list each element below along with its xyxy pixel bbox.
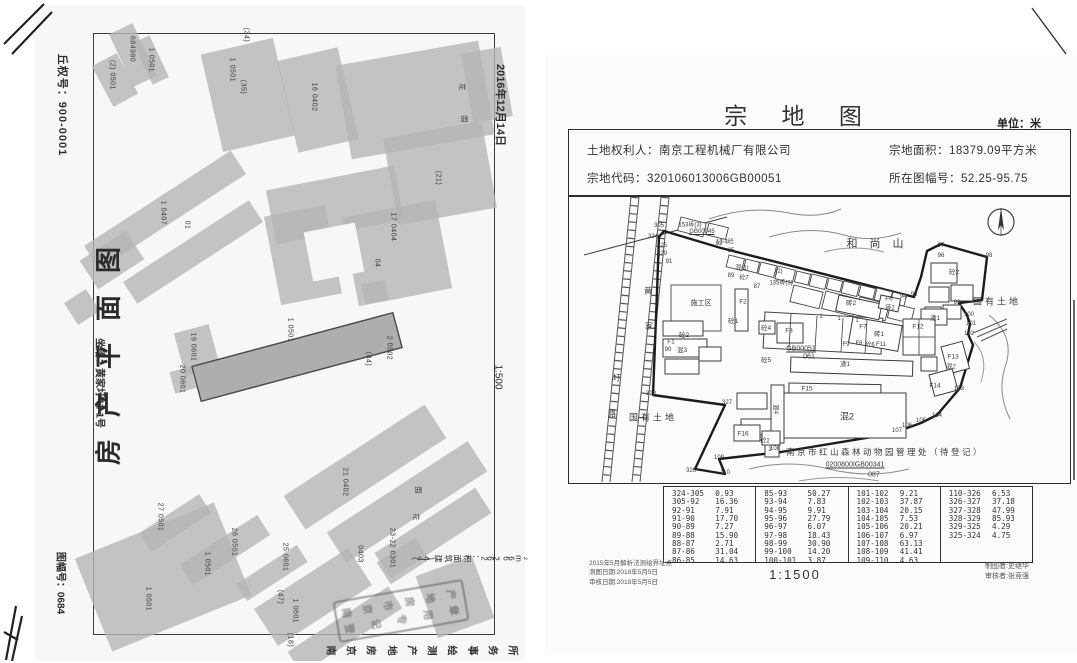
map-label: 104	[932, 413, 942, 419]
map-label: 渣1	[930, 312, 940, 322]
rotated-char: 产	[405, 646, 420, 656]
note-line: 2015年5月解析法测绘界址点	[589, 559, 672, 568]
map-label: F2	[739, 299, 747, 306]
map-label: 混2	[840, 410, 854, 423]
segment-row: 109-1104.63	[857, 557, 934, 565]
building-label: 0403	[357, 545, 364, 563]
building-label: 25 0601	[282, 543, 289, 572]
segment-length: 4.63	[900, 557, 934, 565]
building-label: (44)	[365, 352, 372, 366]
map-label: 107	[892, 428, 902, 434]
rotated-char: 房	[402, 595, 419, 607]
building-label: 花	[457, 83, 467, 91]
plan-scale: 1:500	[493, 364, 504, 389]
map-label: 102	[964, 331, 974, 337]
plan-sheet-number: 图幅号：0684	[55, 552, 70, 614]
note-line: 审核日期:2018年5月5日	[589, 578, 672, 587]
segment-id: 325-324	[949, 532, 981, 540]
map-label: 87	[754, 284, 761, 290]
map-label: 砼5	[761, 354, 771, 364]
map-label: 砼6	[865, 340, 874, 349]
map-label: 324	[648, 234, 658, 240]
segment-row: 325-3244.75	[949, 532, 1026, 540]
rotated-char: 房	[365, 646, 380, 656]
segment-id: 109-110	[857, 557, 889, 565]
rotated-char: 京	[345, 646, 360, 656]
map-label: 砼2	[760, 436, 769, 445]
building-label: 1 0501	[287, 318, 294, 342]
map-label: 砖1	[874, 328, 884, 338]
map-label: 135砖(3)	[769, 278, 792, 287]
map-label: 圩	[613, 373, 621, 384]
building-label: 684980	[129, 36, 136, 62]
map-sheet-number: 所在图幅号：52.25-95.75	[889, 170, 1028, 186]
rotated-char: 产	[443, 588, 460, 600]
survey-notes: 2015年5月解析法测绘界址点测图日期:2018年5月5日审核日期:2018年5…	[589, 559, 672, 587]
parcel-map-page: 宗 地 图 单位：米 土地权利人：南京工程机械厂有限公司 宗地代码：320106…	[545, 55, 1077, 655]
building-label: (34)	[243, 28, 250, 42]
map-label: F7	[859, 324, 867, 331]
map-label: 98	[986, 253, 993, 259]
building-label: 围	[459, 115, 469, 123]
rotated-char: 务	[486, 646, 501, 656]
building-label: 2 0502	[386, 336, 393, 360]
map-label: F16	[737, 431, 748, 438]
building-label: 23-22 0301	[389, 528, 396, 568]
parcel-map-title: 宗 地 图	[665, 97, 935, 131]
rotated-char: 南	[325, 646, 340, 656]
plot-number: 丘权号：900-0001	[55, 54, 71, 157]
rotated-char: 用	[420, 608, 437, 620]
map-label: 327	[722, 400, 732, 406]
map-label: 91	[666, 259, 673, 265]
note-line: 审核者:张竞强	[985, 572, 1029, 582]
rotated-char: ²	[518, 557, 529, 560]
rotated-char: 专	[394, 613, 411, 625]
rotated-char: 登	[342, 622, 359, 634]
map-label: 110	[720, 470, 730, 476]
map-label: 087	[868, 472, 880, 479]
map-label: F15	[801, 386, 812, 393]
map-label: 砼4	[761, 322, 771, 332]
building-label: 20 0601	[179, 365, 186, 394]
building-label: 1 0501	[229, 58, 236, 82]
parcel-map-box: 和尚山国有土地国有土地施工区黄家圩路305324325329919285153砖…	[568, 196, 1071, 484]
rotated-char: 所	[506, 646, 521, 656]
map-label: 85	[728, 248, 735, 254]
segment-row: 86-8514.63	[672, 557, 749, 565]
note-line: 制图者:史继华	[985, 562, 1029, 572]
parcel-area: 宗地面积：18379.09平方米	[889, 142, 1037, 158]
segment-table: 324-3050.93305-9216.3692-917.9191-9017.7…	[663, 486, 1033, 563]
map-label: 97	[938, 243, 945, 249]
map-label: 99	[954, 300, 961, 306]
map-label: 路	[608, 409, 616, 420]
map-label: 105	[916, 418, 926, 424]
segment-table-column: 110-3266.53326-32737.18327-32847.99328-3…	[940, 487, 1032, 562]
building-label: 04	[374, 259, 381, 268]
building-area-note: (44) 建筑面积：262.66m²	[413, 553, 525, 564]
map-label: F3	[785, 328, 793, 335]
map-label: 93	[911, 292, 918, 298]
building-label: 1 0501	[148, 48, 155, 72]
building-label: 1 0407	[160, 201, 167, 225]
segment-table-column: 324-3050.93305-9216.3692-917.9191-9017.7…	[664, 487, 755, 562]
map-label: 砼1	[728, 315, 738, 325]
map-label: GB00045	[689, 229, 714, 235]
segment-table-column: 101-1029.21102-10337.87103-10420.15104-1…	[848, 487, 940, 562]
map-label: 2	[768, 447, 771, 453]
map-label: 渣1	[840, 358, 850, 368]
map-label: 砖2	[846, 297, 856, 307]
map-label: 混3	[677, 344, 687, 354]
building-label: 01	[184, 221, 191, 230]
map-label: F11	[876, 342, 886, 348]
map-label: 153砖(3)	[678, 220, 701, 229]
building-label: (18)	[287, 633, 294, 647]
rotated-char: 记	[368, 617, 385, 629]
map-label: 砼7	[739, 273, 748, 282]
rotated-char: 绘	[446, 646, 461, 656]
parcel-code: 宗地代码：320106013006GB00051	[587, 170, 782, 186]
segment-length: 14.63	[715, 557, 749, 565]
map-label: 325	[657, 243, 667, 249]
rotated-char: 市	[381, 599, 398, 611]
map-label: 1	[855, 318, 858, 324]
rotated-char: 测	[426, 646, 441, 656]
map-label: 家	[645, 321, 653, 332]
map-label: 90	[665, 347, 672, 353]
map-label: 混2	[946, 362, 955, 371]
plan-location: 坐落：黄家圩41-1号	[94, 338, 109, 428]
map-label: 0200800IGB00341	[826, 462, 885, 469]
map-label: 砖2	[885, 303, 894, 312]
map-label: 89	[728, 273, 735, 279]
map-label: F6	[885, 296, 893, 303]
segment-length: 3.87	[808, 557, 842, 565]
map-label: 103	[954, 386, 964, 392]
map-label: 施工区	[691, 298, 712, 308]
segment-id: 86-85	[672, 557, 695, 565]
map-label: F13	[947, 354, 958, 361]
segment-length: 4.75	[992, 532, 1026, 540]
map-label: 106	[902, 423, 912, 429]
map-label: 砼2	[679, 329, 689, 339]
land-owner: 土地权利人：南京工程机械厂有限公司	[587, 142, 791, 158]
map-label: 13-4砼	[716, 237, 734, 246]
map-label: 305	[654, 223, 664, 229]
plan-date: 2016年12月14日	[493, 64, 509, 146]
rotated-char: 京	[360, 602, 377, 614]
map-label: F14	[929, 383, 940, 390]
map-label: 101	[966, 321, 976, 327]
map-label: 混(1)	[735, 263, 748, 272]
map-label: F8	[855, 341, 862, 347]
map-label: 100	[964, 312, 974, 318]
surveying-agency: 南京房地产测绘事务所	[327, 643, 519, 658]
map-label: F9	[842, 342, 849, 348]
property-plan-page: 丘权号：900-0001 房产平面图 坐落：黄家圩41-1号 图幅号：0684 …	[35, 5, 525, 661]
map-label: 国有土地	[629, 411, 677, 424]
building-label: (47)	[277, 590, 284, 604]
map-label: 黄	[644, 286, 652, 297]
segment-table-column: 85-9350.2793-947.8394-959.9195-9627.7996…	[755, 487, 847, 562]
building-label: 1 0601	[292, 599, 299, 623]
building-label: (35)	[240, 80, 247, 94]
rotated-char: 地	[423, 591, 440, 603]
map-label: 砼2	[949, 266, 959, 276]
map-label: (2)	[775, 269, 782, 275]
building-label: 1 0501	[204, 552, 211, 576]
map-label: 061	[803, 354, 815, 361]
parcel-header-box: 土地权利人：南京工程机械厂有限公司 宗地代码：320106013006GB000…	[568, 129, 1071, 196]
map-label: 混4	[772, 404, 782, 414]
building-label: (2) 0501	[109, 60, 116, 90]
map-label: F12	[912, 324, 923, 331]
building-label: 19 0601	[190, 333, 197, 362]
map-label: 328	[646, 391, 656, 397]
building-label: 花	[411, 513, 421, 521]
building-label: 围	[413, 486, 423, 494]
segment-id: 100-101	[764, 557, 796, 565]
map-label: 329	[657, 251, 667, 257]
rotated-char: 地	[385, 646, 400, 656]
building-label: 26 0501	[231, 528, 238, 557]
rotated-char: 南	[339, 606, 356, 618]
map-label: 96	[938, 253, 945, 259]
drafter-notes: 制图者:史继华审核者:张竞强	[985, 562, 1029, 582]
rotated-char: 章	[446, 603, 463, 615]
map-label: 1	[819, 314, 822, 320]
note-line: 测图日期:2018年5月5日	[589, 568, 672, 577]
building-label: 17 0404	[390, 213, 397, 242]
map-label: 94	[900, 294, 907, 300]
map-scale: 1:1500	[735, 567, 855, 582]
map-label: 109	[714, 455, 724, 461]
map-label: GB00051	[786, 346, 816, 353]
building-label: 1 0501	[145, 587, 152, 611]
building-label: (21)	[435, 171, 442, 185]
map-label: F1	[667, 339, 675, 346]
map-label: 326	[686, 468, 696, 474]
map-label: 和尚山	[847, 235, 916, 251]
segment-row: 100-1013.87	[764, 557, 841, 565]
map-label: 1	[837, 316, 840, 322]
map-label: 国有土地	[973, 295, 1021, 308]
rotated-char: 事	[466, 646, 481, 656]
building-label: 21 0402	[342, 468, 349, 497]
map-label: 南京市红山森林动物园管理处（待登记）	[786, 446, 984, 458]
parcel-map-drawing	[569, 197, 1069, 482]
building-label: 27 0501	[157, 503, 164, 532]
building-label: 16 0402	[311, 83, 318, 112]
